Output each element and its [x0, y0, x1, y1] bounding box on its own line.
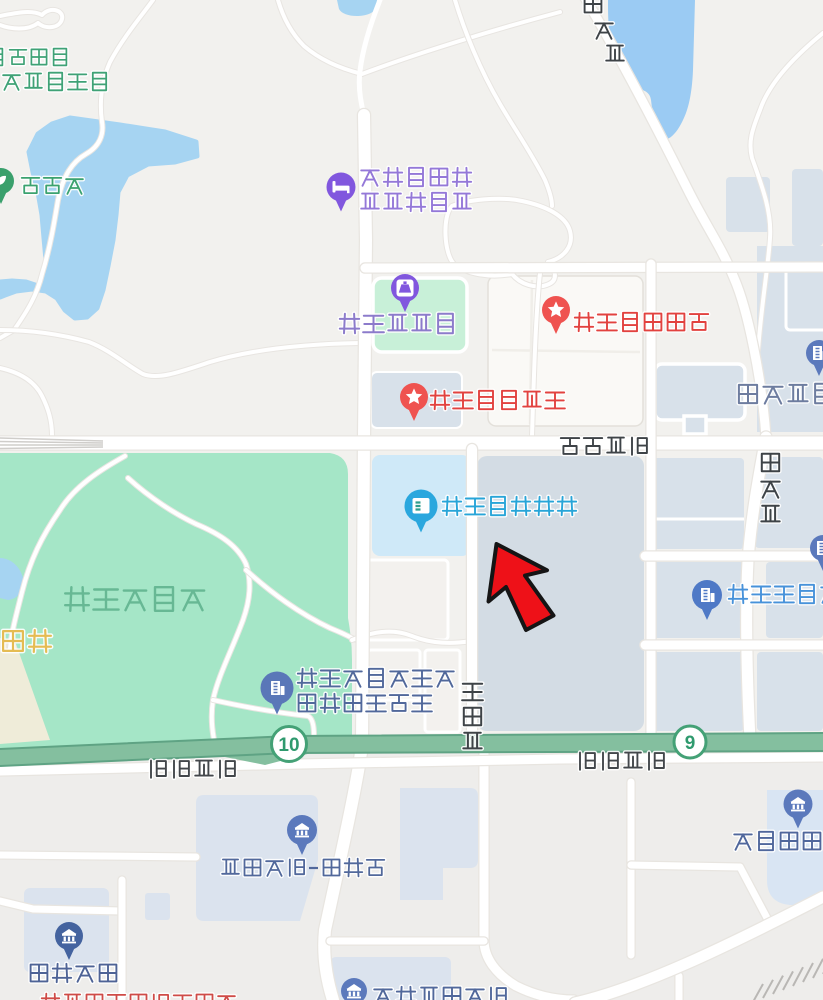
svg-text:10: 10 — [278, 735, 299, 756]
svg-text:9: 9 — [685, 733, 696, 754]
